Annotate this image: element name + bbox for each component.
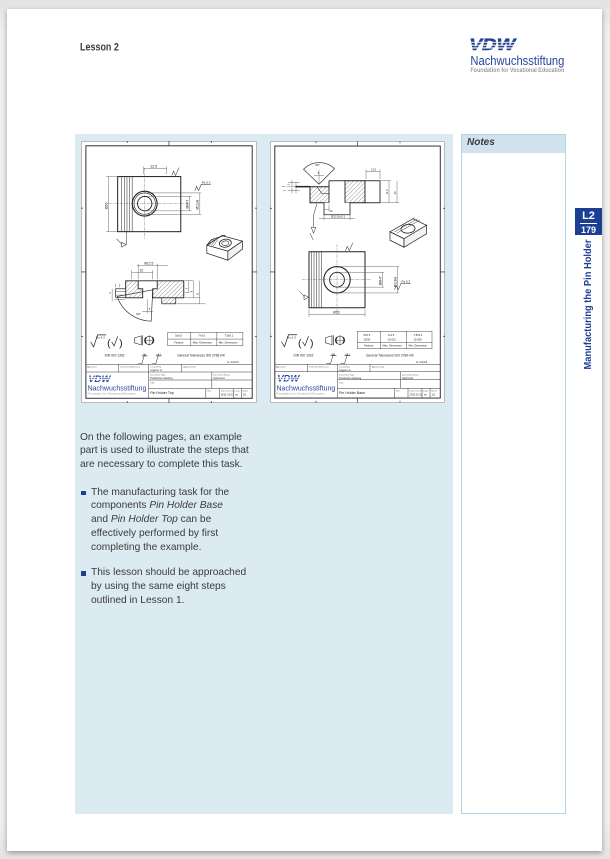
svg-text:Ø36: Ø36 bbox=[104, 202, 108, 209]
svg-text:1: 1 bbox=[287, 183, 291, 185]
svg-text:General Tolerances ISO 2768-mK: General Tolerances ISO 2768-mK bbox=[366, 353, 415, 357]
svg-text:Pin Holder Top: Pin Holder Top bbox=[150, 390, 174, 394]
svg-text:7+0.5: 7+0.5 bbox=[198, 333, 205, 337]
svg-text:7.5±0.1: 7.5±0.1 bbox=[414, 332, 423, 336]
svg-text:5: 5 bbox=[184, 287, 188, 289]
svg-text:Rev.: Rev. bbox=[396, 390, 401, 392]
svg-text:+0.2: +0.2 bbox=[345, 353, 350, 356]
svg-text:Rz 6.3: Rz 6.3 bbox=[402, 279, 411, 283]
svg-text:2011-10-21: 2011-10-21 bbox=[220, 392, 234, 396]
svg-text:10.000: 10.000 bbox=[414, 337, 423, 341]
svg-text:8: 8 bbox=[189, 290, 193, 292]
svg-text:5: 5 bbox=[318, 171, 320, 175]
svg-text:Legrom G.: Legrom G. bbox=[150, 368, 163, 372]
svg-text:Rz 6.3: Rz 6.3 bbox=[287, 335, 296, 339]
svg-text:-0.2: -0.2 bbox=[142, 353, 147, 356]
svg-text:7+0.5: 7+0.5 bbox=[388, 332, 395, 336]
svg-text:VDW: VDW bbox=[469, 35, 518, 54]
svg-text:Date of Issue: Date of Issue bbox=[220, 389, 234, 392]
svg-text:Ø20: Ø20 bbox=[333, 310, 340, 314]
svg-text:Production drawing: Production drawing bbox=[150, 375, 173, 379]
svg-text:(: ( bbox=[107, 337, 111, 349]
svg-text:Ø12.5: Ø12.5 bbox=[144, 261, 153, 265]
svg-text:10/30: 10/30 bbox=[364, 337, 371, 341]
svg-text:Max. Dimension: Max. Dimension bbox=[383, 343, 403, 347]
svg-text:5±0.5: 5±0.5 bbox=[364, 332, 371, 336]
svg-text:10.021: 10.021 bbox=[388, 337, 397, 341]
svg-text:Min. Dimension: Min. Dimension bbox=[409, 343, 428, 347]
svg-text:Production drawing: Production drawing bbox=[339, 375, 362, 379]
svg-text:Sheet: Sheet bbox=[431, 389, 437, 392]
svg-text:11.5: 11.5 bbox=[385, 188, 389, 193]
svg-text:en: en bbox=[235, 393, 238, 396]
svg-text:Approved by: Approved by bbox=[372, 365, 385, 368]
svg-text:5: 5 bbox=[148, 306, 150, 310]
svg-text:11: 11 bbox=[195, 292, 199, 295]
svg-text:Approved: Approved bbox=[402, 375, 414, 379]
svg-text:H: 2/1/1/3: H: 2/1/1/3 bbox=[227, 359, 239, 363]
svg-text:Lang.: Lang. bbox=[234, 390, 240, 392]
svg-text:Rz 6.3: Rz 6.3 bbox=[201, 180, 210, 184]
svg-text:DIN ISO 1302: DIN ISO 1302 bbox=[104, 353, 124, 357]
svg-text:-0.2: -0.2 bbox=[331, 353, 336, 356]
svg-text:Title:: Title: bbox=[339, 381, 344, 384]
svg-text:1/1: 1/1 bbox=[432, 392, 436, 396]
svg-text:Pin Holder Base: Pin Holder Base bbox=[339, 390, 365, 394]
svg-text:Title:: Title: bbox=[150, 381, 155, 384]
svg-text:Created by: Created by bbox=[150, 365, 162, 368]
svg-text:General Tolerances ISO 2768-mK: General Tolerances ISO 2768-mK bbox=[177, 353, 226, 357]
svg-text:Approved by: Approved by bbox=[183, 365, 196, 368]
svg-text:Date of Issue: Date of Issue bbox=[410, 389, 424, 392]
svg-text:3: 3 bbox=[108, 291, 112, 293]
svg-text:en: en bbox=[424, 393, 427, 396]
svg-text:Technical Reference: Technical Reference bbox=[309, 365, 330, 368]
svg-text:Foundation for Vocational Educ: Foundation for Vocational Education bbox=[470, 67, 564, 74]
svg-text:1/1: 1/1 bbox=[242, 392, 246, 396]
svg-text:Feature: Feature bbox=[174, 340, 184, 344]
svg-text:Rz 6.3: Rz 6.3 bbox=[96, 335, 105, 339]
svg-text:Ø11H8: Ø11H8 bbox=[393, 276, 397, 287]
svg-text:Approved: Approved bbox=[213, 375, 225, 379]
svg-text:H: 2/1/1/3: H: 2/1/1/3 bbox=[416, 359, 428, 363]
svg-text:): ) bbox=[310, 337, 314, 349]
svg-text:Min. Dimension: Min. Dimension bbox=[218, 340, 237, 344]
svg-text:(: ( bbox=[298, 337, 302, 349]
svg-text:Ø12.5±0.1: Ø12.5±0.1 bbox=[331, 214, 345, 218]
svg-text:Lang.: Lang. bbox=[423, 390, 429, 392]
svg-text:Legrom G.: Legrom G. bbox=[339, 367, 352, 371]
svg-text:Ø6H7: Ø6H7 bbox=[378, 276, 382, 285]
svg-text:12.5: 12.5 bbox=[371, 167, 377, 171]
svg-text:Approved: Approved bbox=[87, 365, 97, 368]
svg-text:20: 20 bbox=[393, 190, 397, 193]
svg-text:90°: 90° bbox=[136, 311, 141, 315]
svg-text:5±0.5: 5±0.5 bbox=[175, 333, 182, 337]
svg-text:7.5±0.1: 7.5±0.1 bbox=[224, 333, 233, 337]
svg-text:Approved: Approved bbox=[276, 365, 286, 368]
svg-text:2011-10-21: 2011-10-21 bbox=[410, 392, 424, 396]
svg-text:3: 3 bbox=[283, 189, 287, 191]
svg-text:Ø6H7: Ø6H7 bbox=[185, 199, 189, 208]
svg-text:Sheet: Sheet bbox=[242, 389, 248, 392]
svg-text:Created by: Created by bbox=[339, 365, 351, 368]
svg-text:Manufacturing the Pin Holder: Manufacturing the Pin Holder bbox=[583, 239, 594, 369]
svg-text:Technical Reference: Technical Reference bbox=[120, 365, 141, 368]
svg-text:Ø11x8: Ø11x8 bbox=[195, 199, 199, 209]
svg-text:Nachwuchsstiftung: Nachwuchsstiftung bbox=[470, 54, 564, 68]
svg-text:Max. Dimension: Max. Dimension bbox=[192, 340, 212, 344]
svg-text:+0.2: +0.2 bbox=[156, 353, 161, 356]
svg-text:Foundation for Vocational Educ: Foundation for Vocational Education bbox=[277, 391, 326, 395]
svg-text:12.5: 12.5 bbox=[150, 164, 157, 168]
svg-text:DIN ISO 1302: DIN ISO 1302 bbox=[294, 353, 314, 357]
svg-text:): ) bbox=[119, 337, 123, 349]
svg-text:90°: 90° bbox=[316, 162, 321, 166]
svg-text:Rev.: Rev. bbox=[207, 390, 212, 392]
svg-text:10: 10 bbox=[139, 268, 143, 272]
svg-text:Foundation for Vocational Educ: Foundation for Vocational Education bbox=[87, 391, 136, 395]
svg-text:Feature: Feature bbox=[364, 343, 374, 347]
